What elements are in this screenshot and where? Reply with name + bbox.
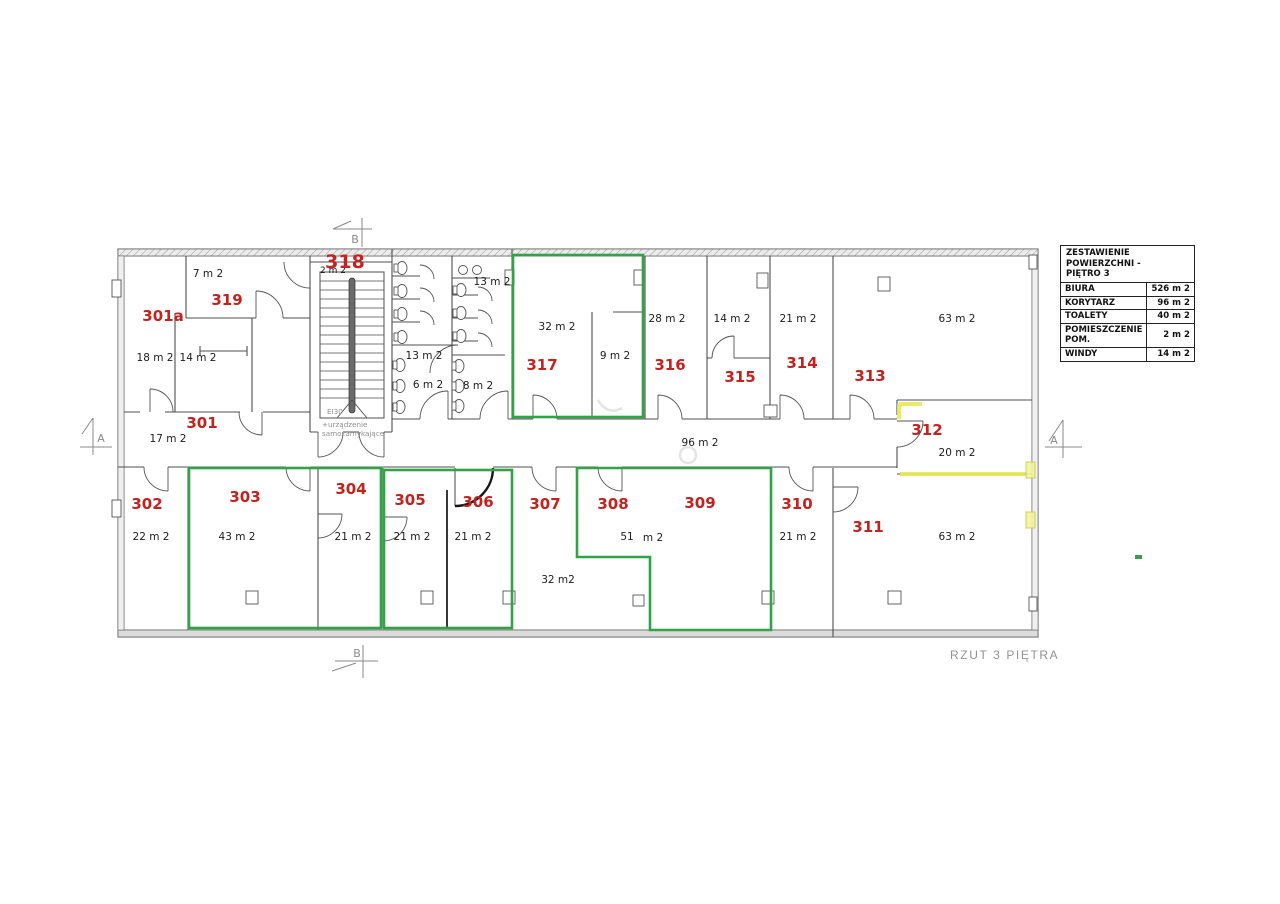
area-labels: 7 m 2 2 m 2 13 m 2 32 m 2 9 m 2 28 m 2 1…	[133, 266, 976, 586]
room-308-number: 308	[597, 495, 628, 513]
room-301-number: 301	[186, 414, 217, 432]
room-306-area: 21 m 2	[455, 531, 492, 543]
room-315-number: 315	[724, 368, 755, 386]
room-308-area-unit: m 2	[643, 532, 663, 544]
area-summary-table: ZESTAWIENIE POWIERZCHNI - PIĘTRO 3 BIURA…	[1060, 245, 1195, 362]
room-303-area: 43 m 2	[219, 531, 256, 543]
room-313-number: 313	[854, 367, 885, 385]
room-301a-number: 301a	[142, 307, 183, 325]
section-marker-b-bottom: B	[353, 647, 361, 660]
room-310-number: 310	[781, 495, 812, 513]
room-310-area: 21 m 2	[780, 531, 817, 543]
room-307-area: 32 m2	[541, 574, 575, 586]
room-number-labels: 318 319 301a 301 317 316 315 314 313 312…	[131, 251, 942, 536]
legend-label-korytarz: KORYTARZ	[1061, 296, 1147, 310]
room-305-number: 305	[394, 491, 425, 509]
legend-label-windy: WINDY	[1061, 348, 1147, 362]
table-row: POMIESZCZENIE POM. 2 m 2	[1061, 323, 1195, 347]
legend-value-toalety: 40 m 2	[1147, 310, 1194, 324]
section-marker-a-right: A	[1050, 434, 1058, 447]
room-317-area-sub: 9 m 2	[600, 350, 630, 362]
legend-title-line1: ZESTAWIENIE POWIERZCHNI -	[1066, 248, 1141, 269]
table-row: TOALETY 40 m 2	[1061, 310, 1195, 324]
room-308-area-value: 51	[620, 531, 633, 543]
floor-plan-page: B B A A 7 m 2 2 m 2 13 m 2 32 m 2 9 m 2 …	[0, 0, 1280, 904]
legend-value-korytarz: 96 m 2	[1147, 296, 1194, 310]
room-304-number: 304	[335, 480, 366, 498]
legend-label-toalety: TOALETY	[1061, 310, 1147, 324]
stairwell	[320, 272, 384, 418]
legend-title-line2: PIĘTRO 3	[1066, 269, 1110, 279]
toilet-top-right-area: 13 m 2	[474, 276, 511, 288]
room-319-number: 319	[211, 291, 242, 309]
section-marker-b-top: B	[351, 233, 359, 246]
interior-walls	[118, 249, 1032, 637]
table-row: BIURA 526 m 2	[1061, 282, 1195, 296]
room-305-area: 21 m 2	[394, 531, 431, 543]
room-301a-area-left: 18 m 2	[137, 352, 174, 364]
section-marker-a-left: A	[97, 432, 105, 445]
faint-marks	[598, 400, 696, 463]
room-302-number: 302	[131, 495, 162, 513]
drawing-title: RZUT 3 PIĘTRA	[950, 648, 1130, 662]
room-306-number: 306	[462, 493, 493, 511]
room-304-area: 21 m 2	[335, 531, 372, 543]
stair-note-line1: +urządzenie	[322, 420, 368, 429]
room-316-area: 28 m 2	[649, 313, 686, 325]
room-318-number: 318	[325, 251, 365, 273]
room-317-number: 317	[526, 356, 557, 374]
room-311-number: 311	[852, 518, 883, 536]
room-301a-area-right: 14 m 2	[180, 352, 217, 364]
stair-note-line2: samozamykające	[322, 429, 385, 438]
room-301-area: 17 m 2	[150, 433, 187, 445]
legend-value-biura: 526 m 2	[1147, 282, 1194, 296]
room-319-area: 7 m 2	[193, 268, 223, 280]
highlight-green-outlines	[189, 255, 1142, 630]
section-markers	[80, 218, 1082, 678]
room-302-area: 22 m 2	[133, 531, 170, 543]
floor-plan-drawing: B B A A 7 m 2 2 m 2 13 m 2 32 m 2 9 m 2 …	[0, 0, 1280, 904]
room-314-area: 21 m 2	[780, 313, 817, 325]
room-315-area: 14 m 2	[714, 313, 751, 325]
green-tick	[1135, 555, 1142, 559]
toilet-bottom-right-area: 8 m 2	[463, 380, 493, 392]
table-row: KORYTARZ 96 m 2	[1061, 296, 1195, 310]
room-313-area: 63 m 2	[939, 313, 976, 325]
legend-value-windy: 14 m 2	[1147, 348, 1194, 362]
legend-label-biura: BIURA	[1061, 282, 1147, 296]
room-317-area-main: 32 m 2	[539, 321, 576, 333]
room-303-number: 303	[229, 488, 260, 506]
room-312-area: 20 m 2	[939, 447, 976, 459]
toilet-bottom-left-area: 6 m 2	[413, 379, 443, 391]
toilet-top-left-area: 13 m 2	[406, 350, 443, 362]
legend-label-pomieszczenie: POMIESZCZENIE POM.	[1061, 323, 1147, 347]
stair-fire-rating: EI30	[327, 407, 343, 416]
room-312-number: 312	[911, 421, 942, 439]
room-309-number: 309	[684, 494, 715, 512]
column-markers	[112, 255, 1037, 611]
room-307-number: 307	[529, 495, 560, 513]
table-row: WINDY 14 m 2	[1061, 348, 1195, 362]
legend-value-pomieszczenie: 2 m 2	[1147, 323, 1194, 347]
room-314-number: 314	[786, 354, 817, 372]
room-316-number: 316	[654, 356, 685, 374]
room-311-area: 63 m 2	[939, 531, 976, 543]
corridor-area: 96 m 2	[682, 437, 719, 449]
